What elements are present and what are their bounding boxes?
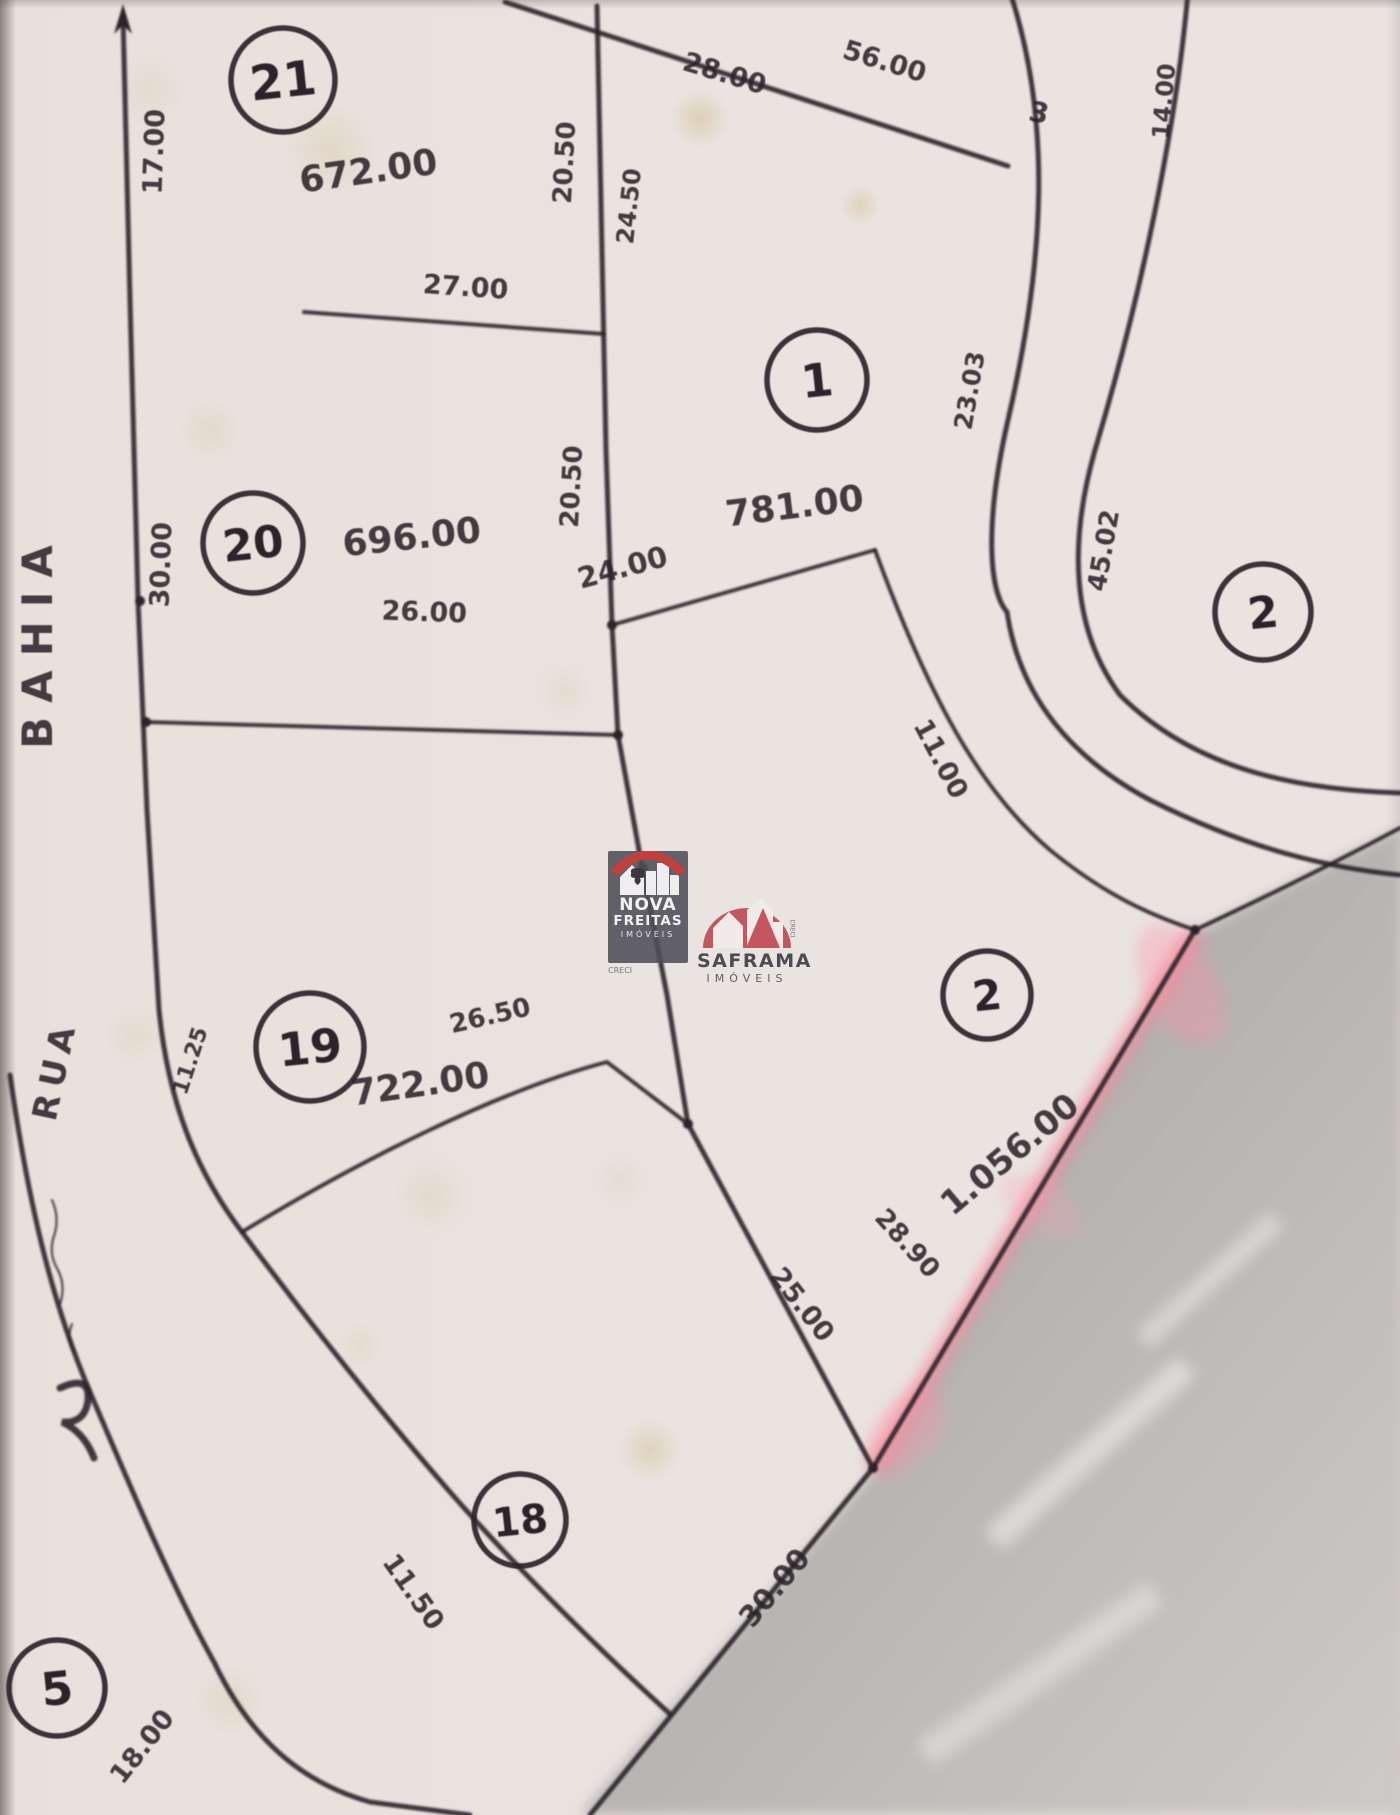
lot-number: 1 [798,352,835,409]
lot-area-label: 672.00 [297,142,440,202]
lot-number: 2 [1245,586,1281,640]
lot-5-marker: 5 [9,1640,105,1736]
lot-1-marker: 1 [767,330,867,430]
lot-2-marker: 2 [1215,564,1311,660]
dimension-label: 20.50 [548,121,582,205]
saframa-creci: CRECI [788,919,795,937]
junction-dot [135,596,145,606]
nova-line2: FREITAS [608,914,688,929]
nova-line3: IMÓVEIS [608,929,688,941]
lot-19-marker: 19 [256,993,364,1101]
lot-20-marker: 20 [203,493,303,593]
boundary-line [992,0,1400,875]
lot-21-marker: 21 [231,28,335,132]
boundary-line [123,16,670,1714]
boundary-line [10,1075,470,1815]
junction-dot [683,1119,693,1129]
watermark-saframa: SAFRAMA IMÓVEIS CRECI [697,870,797,986]
dimension-label: 11.50 [376,1548,450,1636]
dimension-label: 45.02 [1082,508,1126,594]
lot-number: 20 [220,516,286,573]
plat-photo: { "document": { "type": "hand-drawn subd… [0,0,1400,1815]
boundary-line [1078,0,1400,793]
dimension-label: 24.50 [611,167,647,245]
watermark-nova-freitas: NOVA FREITAS IMÓVEIS CRECI [608,851,690,975]
lot-number: 5 [38,1660,75,1717]
lot-area-label: 781.00 [723,478,866,536]
lot-18-marker: 18 [474,1474,566,1566]
boundary-line [146,722,618,735]
dimension-label: 23.03 [948,349,990,432]
dimension-label: 30.00 [145,521,179,607]
lot-number: 2 [970,970,1004,1022]
nova-line1: NOVA [608,897,688,914]
dimension-label: 27.00 [422,269,509,306]
dimension-label: 14.00 [1147,62,1182,140]
dimension-label: 3 [1026,95,1052,131]
dimension-label: 24.00 [574,539,671,596]
lot-area-label: 722.00 [349,1055,492,1115]
dimension-label: 18.00 [104,1704,181,1790]
dimension-label: 11.00 [907,714,974,804]
junction-dot [613,730,623,740]
dimension-label: 56.00 [839,35,930,90]
saframa-line1: SAFRAMA [697,950,797,972]
dimension-label: 26.00 [381,596,467,630]
nova-creci: CRECI [608,966,690,975]
dimension-label: 11.25 [168,1024,213,1098]
nova-freitas-logo-art [608,851,688,899]
boundary-line [304,312,604,334]
boundary-line [60,1383,94,1458]
nova-freitas-logo: NOVA FREITAS IMÓVEIS [608,851,688,963]
junction-dot [607,620,617,630]
street-name-rua: RUA [25,1015,86,1124]
lot-area-label: 696.00 [341,510,483,565]
lot-2-marker: 2 [943,951,1031,1039]
street-name-bahia: BAHIA [13,531,62,749]
dimension-label: 17.00 [138,108,172,194]
boundary-line [52,1200,74,1352]
lot-number: 18 [490,1496,550,1548]
dimension-label: 28.00 [679,47,770,102]
saframa-logo-art [699,870,795,950]
dimension-label: 26.50 [447,992,534,1040]
junction-dot [141,717,151,727]
lot-number: 21 [247,50,319,113]
dimension-label: 20.50 [555,445,589,529]
lot-number: 19 [275,1017,344,1077]
dimension-label: 28.90 [868,1203,945,1284]
saframa-line2: IMÓVEIS [697,972,797,986]
